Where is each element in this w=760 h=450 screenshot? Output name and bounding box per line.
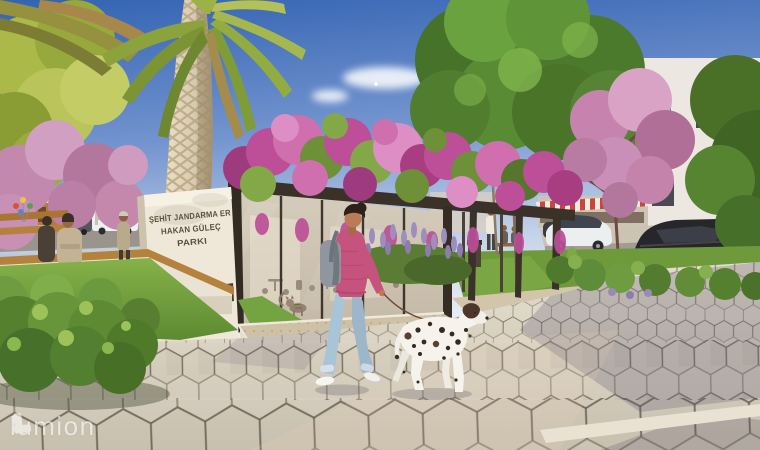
park-render-image: ŞEHİT JANDARMA ER HAKAN GÜLEÇ PARKI AN B… — [0, 0, 760, 450]
scene-canvas: ŞEHİT JANDARMA ER HAKAN GÜLEÇ PARKI AN B… — [0, 0, 760, 450]
hair-bun — [356, 203, 367, 214]
sky-speck — [374, 82, 378, 86]
woman-shadow — [315, 385, 369, 396]
